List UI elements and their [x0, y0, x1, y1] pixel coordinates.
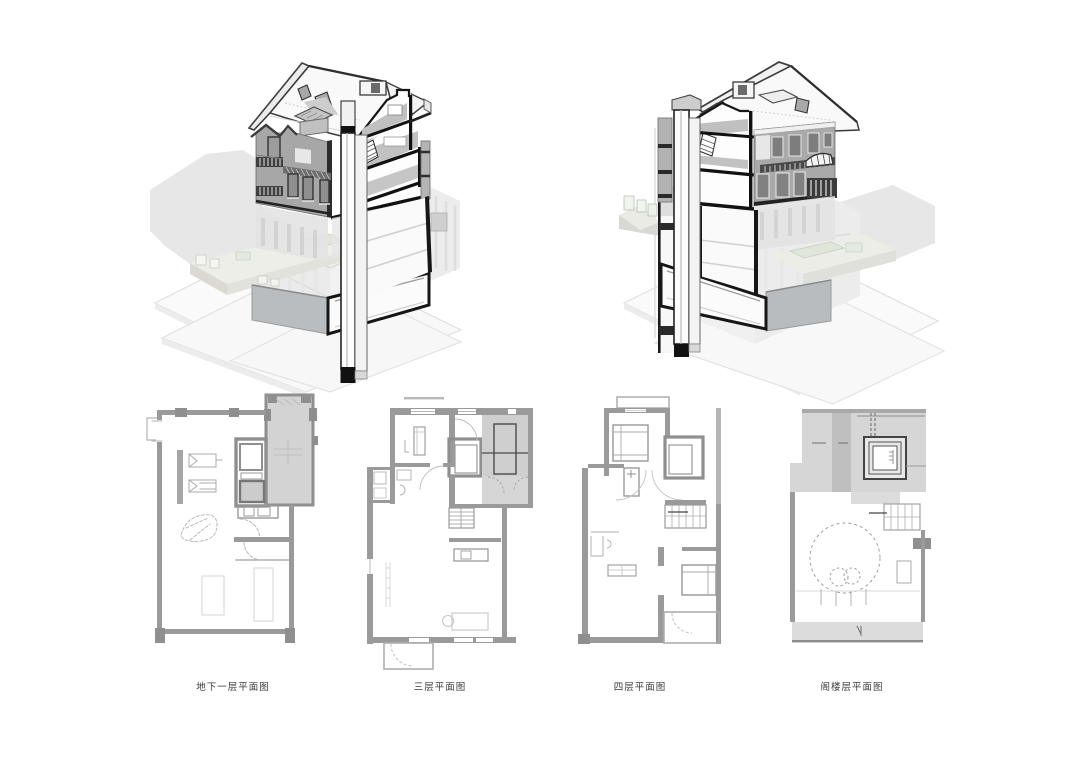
svg-text:地下一层平面图: 地下一层平面图 [196, 681, 270, 693]
svg-text:阁楼层平面图: 阁楼层平面图 [820, 681, 883, 693]
svg-text:三层平面图: 三层平面图 [414, 682, 467, 693]
svg-text:四层平面图: 四层平面图 [614, 682, 667, 693]
